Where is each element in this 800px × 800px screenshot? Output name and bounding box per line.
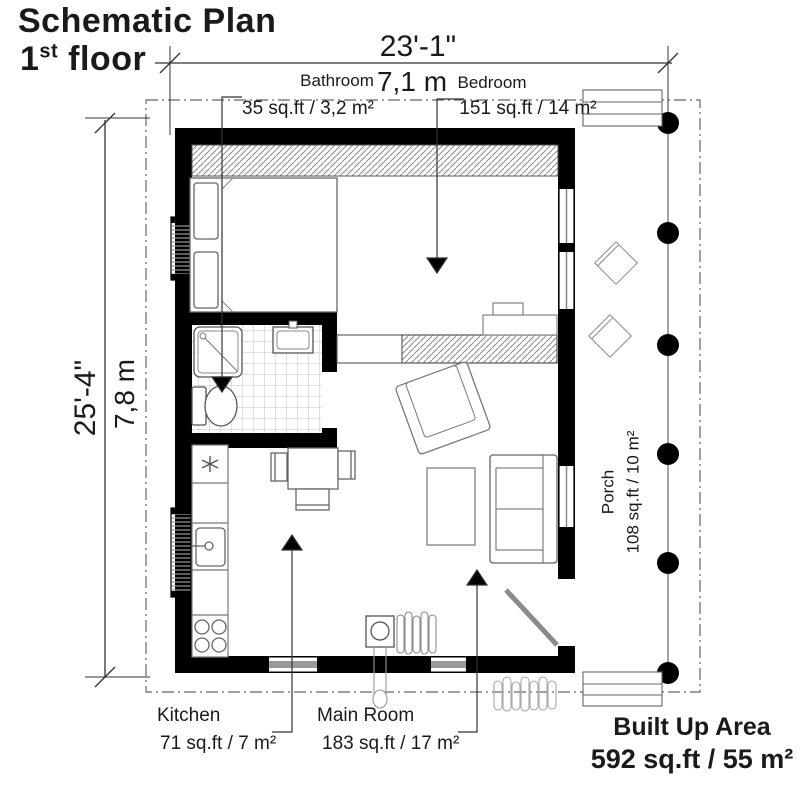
- mainroom-label: Main Room: [317, 705, 414, 727]
- window-bottom-b: [425, 657, 472, 672]
- floor-number: 1: [20, 40, 39, 78]
- bathroom-area-label: 35 sq.ft / 3,2 m²: [242, 98, 374, 120]
- kitchen-label: Kitchen: [157, 705, 220, 727]
- porch-name: Porch: [596, 431, 621, 554]
- porch-column: [657, 443, 679, 465]
- dining-chair: [271, 453, 287, 481]
- porch-label: Porch 108 sq.ft / 10 m²: [596, 431, 645, 554]
- pillow: [194, 252, 218, 308]
- armchair: [395, 361, 491, 455]
- leader-kitchen: [272, 535, 302, 732]
- entry-door-swing: [506, 590, 557, 645]
- window-left-kitchen: [171, 508, 191, 597]
- bushes: [494, 677, 556, 711]
- kitchen-area-label: 71 sq.ft / 7 m²: [160, 733, 276, 755]
- porch-chair: [595, 242, 637, 284]
- dining-chair: [296, 489, 329, 510]
- porch-steps-bottom: [583, 672, 662, 706]
- floor-plan-page: Schematic Plan 1st floor 23'-1" 7,1 m Ba…: [0, 0, 800, 800]
- built-up-area-value: 592 sq.ft / 55 m²: [591, 744, 794, 775]
- floor-word: floor: [58, 40, 146, 78]
- dimension-height-imperial: 25'-4": [69, 360, 103, 436]
- porch-column: [657, 222, 679, 244]
- porch-area-label: 108 sq.ft / 10 m²: [621, 431, 646, 554]
- bedroom-area-label: 151 sq.ft / 14 m²: [459, 98, 596, 120]
- window-left-bedroom: [171, 217, 191, 280]
- page-subtitle: 1st floor: [20, 40, 146, 79]
- shower: [194, 327, 242, 377]
- coffee-table: [427, 468, 475, 545]
- window-right-mainroom: [559, 460, 574, 533]
- bed: [190, 178, 337, 312]
- built-up-area-label: Built Up Area: [613, 713, 770, 742]
- desk: [483, 315, 557, 335]
- bathroom-label: Bathroom: [300, 71, 374, 91]
- dining-table: [271, 448, 355, 510]
- porch-column: [657, 552, 679, 574]
- dimension-width-imperial: 23'-1": [380, 30, 456, 64]
- window-bottom-a: [263, 657, 323, 672]
- pillow: [194, 183, 218, 239]
- toilet: [192, 386, 237, 426]
- leader-bedroom: [427, 99, 464, 273]
- mainroom-area-label: 183 sq.ft / 17 m²: [322, 733, 459, 755]
- page-title: Schematic Plan: [18, 2, 276, 41]
- porch-chair: [589, 315, 631, 357]
- wardrobe-closet: [192, 145, 558, 176]
- porch-column: [657, 334, 679, 356]
- sofa: [490, 455, 557, 563]
- dining-chair: [338, 451, 355, 479]
- dimension-width-metric: 7,1 m: [377, 66, 447, 98]
- media-cabinet: [337, 303, 557, 363]
- leader-mainroom: [458, 570, 487, 732]
- firewood-stack: [397, 612, 436, 654]
- entry-door: [506, 579, 576, 646]
- tv: [493, 303, 523, 315]
- window-right-bedroom: [559, 183, 574, 315]
- kitchen-sink: [192, 528, 225, 566]
- bedroom-label: Bedroom: [458, 73, 527, 93]
- floor-suffix: st: [39, 41, 58, 63]
- dimension-height-metric: 7,8 m: [109, 359, 141, 429]
